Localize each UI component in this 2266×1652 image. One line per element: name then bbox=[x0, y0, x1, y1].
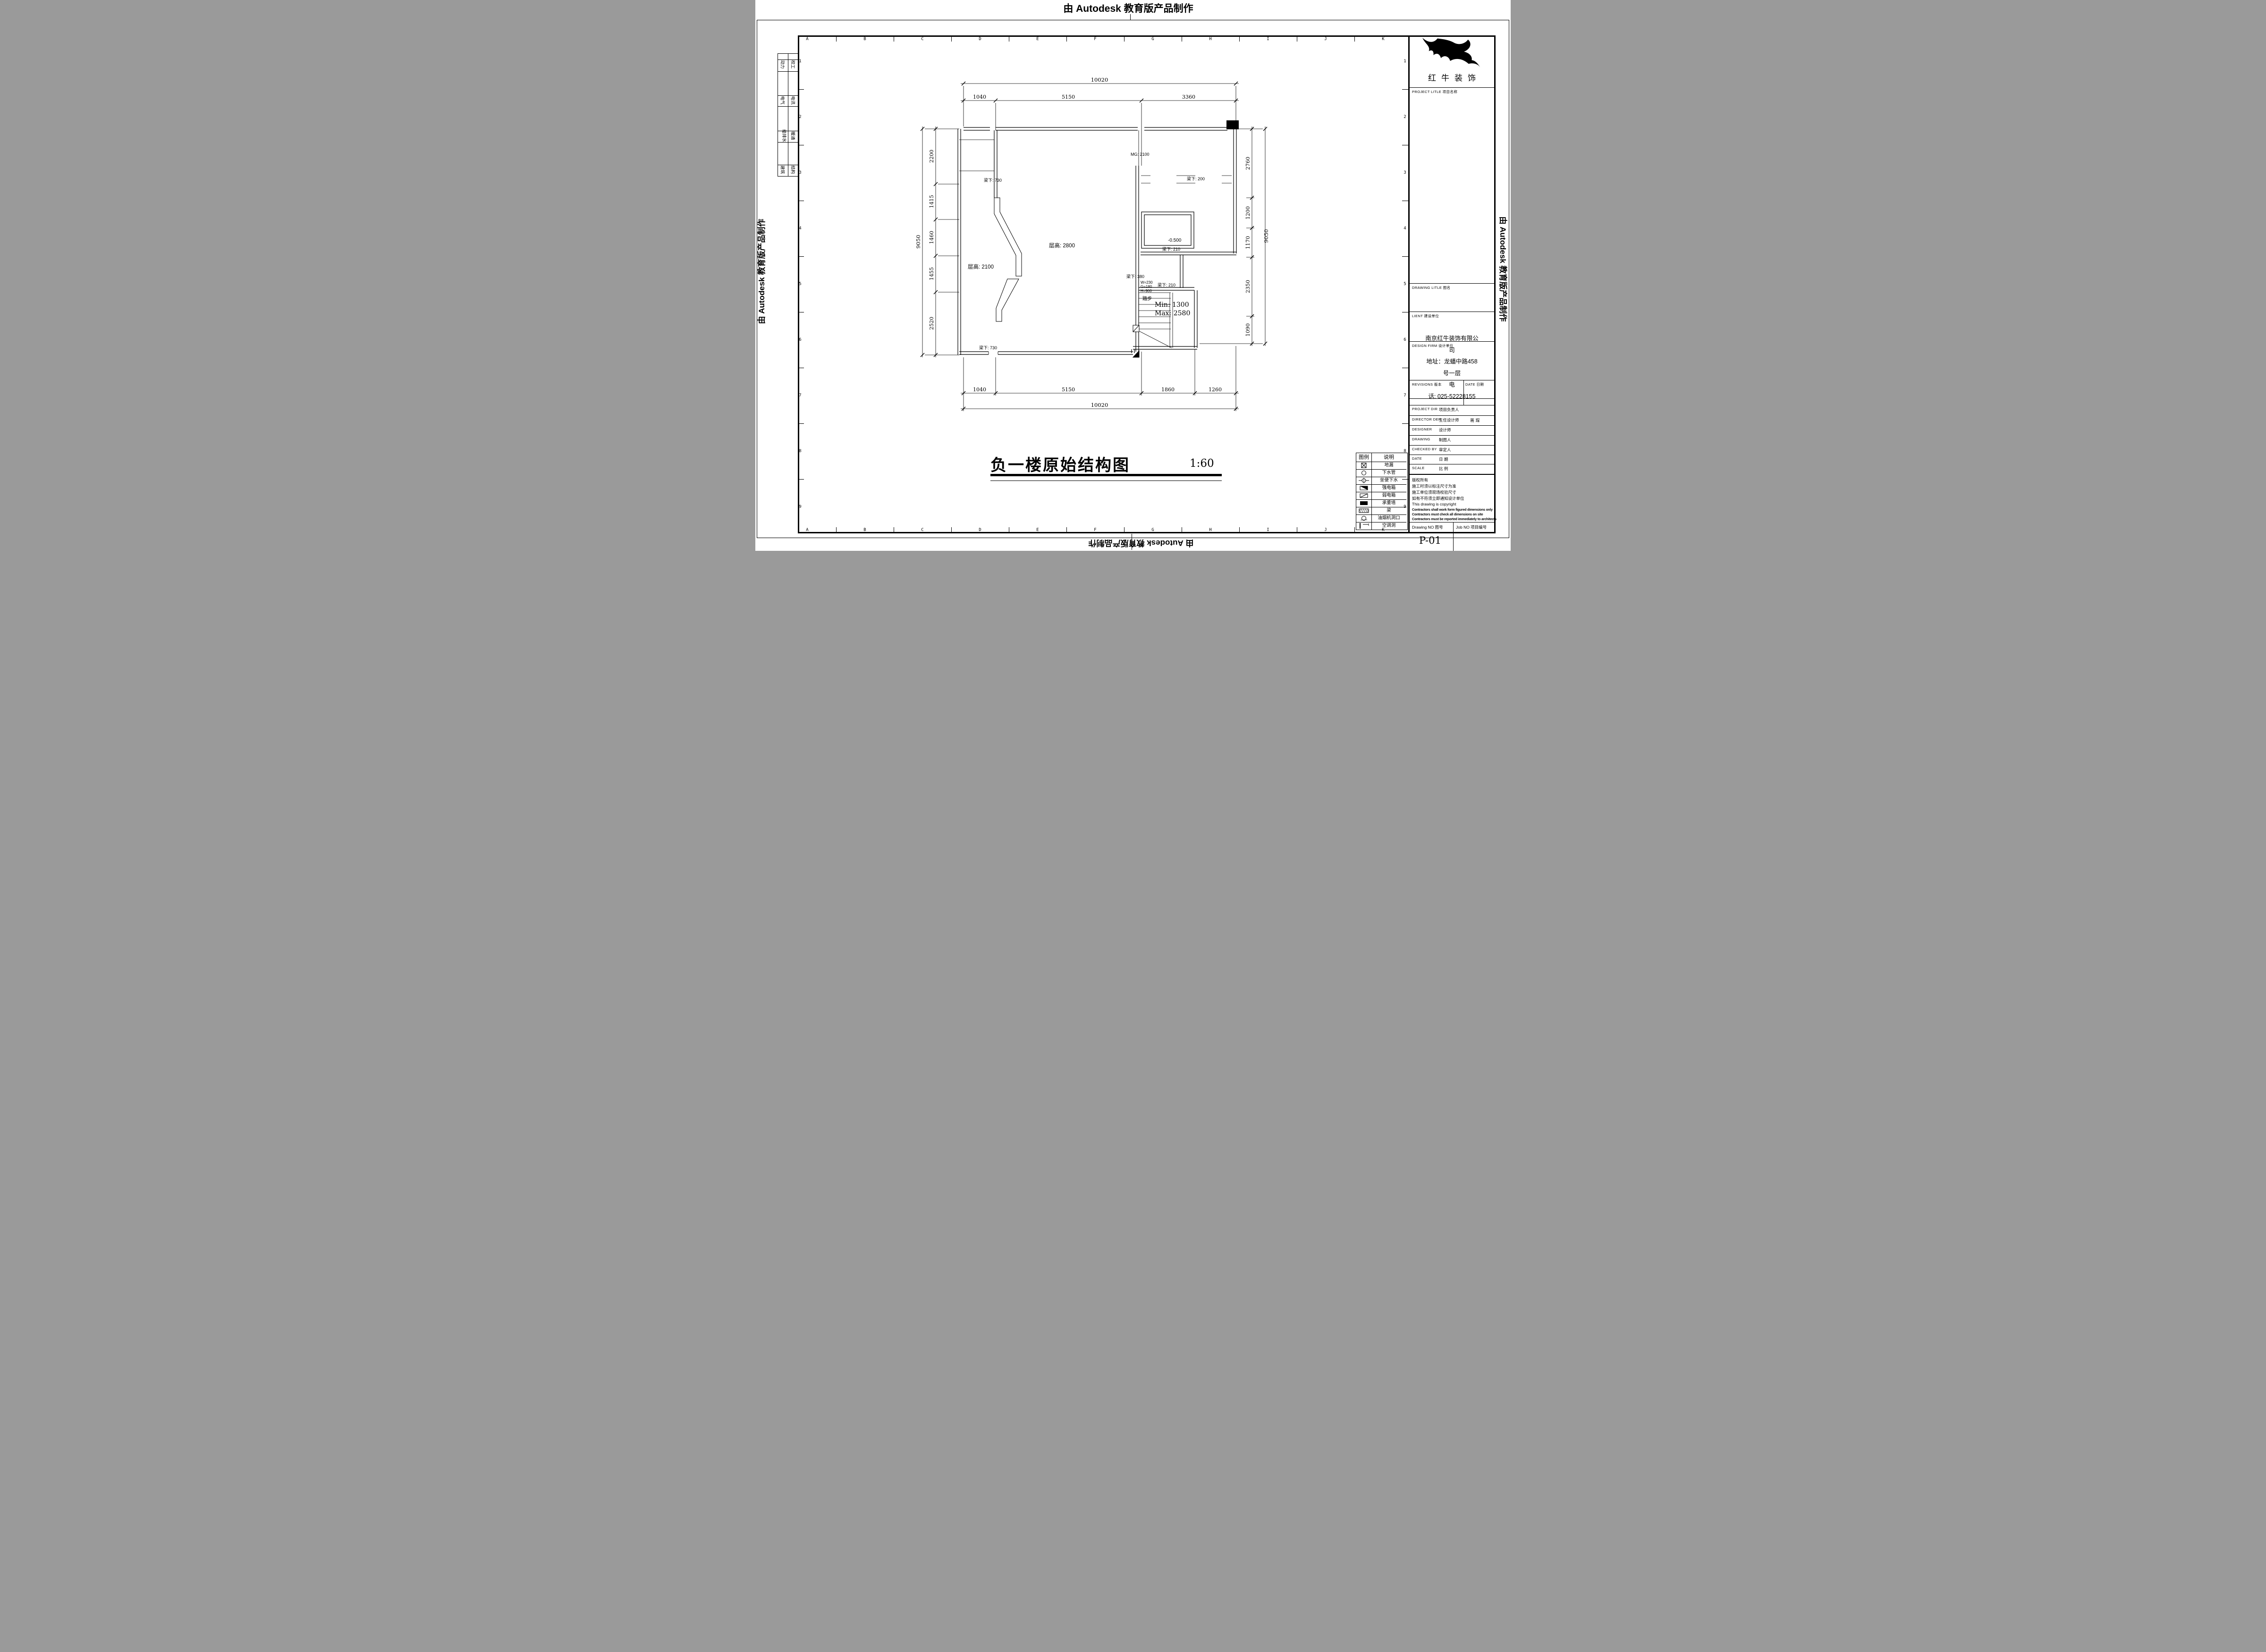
tb-job-no-label: Job NO 项目编号 bbox=[1456, 524, 1487, 530]
grid-number-right: 6 bbox=[1402, 337, 1408, 342]
grid-tick-top bbox=[951, 35, 952, 42]
grid-tick-bottom bbox=[1354, 527, 1355, 533]
legend-desc: 下水管 bbox=[1371, 469, 1406, 477]
tb-line bbox=[1410, 380, 1494, 380]
label-steps: 踏步 bbox=[1142, 295, 1152, 302]
door-jambs-top bbox=[1139, 130, 1141, 166]
grid-tick-top bbox=[1066, 35, 1067, 42]
tb-row-en: PROJECT DIR bbox=[1412, 407, 1437, 411]
grid-tick-left bbox=[798, 145, 804, 145]
tb-row: DATE日 期 bbox=[1410, 455, 1494, 464]
dim-right-0: 2760 bbox=[1245, 157, 1251, 170]
wall-stair-bottom bbox=[1133, 346, 1197, 349]
grid-letter-top: I bbox=[1265, 37, 1271, 42]
niche-lines bbox=[959, 140, 994, 171]
grid-number-right: 3 bbox=[1402, 170, 1408, 175]
grid-letter-bottom: B bbox=[862, 528, 868, 532]
tb-drawing-label: DRAWING LITLE 图名 bbox=[1412, 285, 1451, 290]
wall-step bbox=[1132, 349, 1134, 353]
wall-top bbox=[964, 127, 1227, 130]
legend-desc: 空调洞 bbox=[1371, 522, 1406, 530]
tb-line bbox=[1410, 87, 1494, 88]
grid-tick-bottom bbox=[1009, 527, 1009, 533]
legend-symbol-hood-opening bbox=[1356, 514, 1371, 522]
tb-date-small-label: DATE 日期 bbox=[1465, 382, 1484, 387]
plan-scale: 1:60 bbox=[1190, 457, 1214, 470]
grid-letter-top: B bbox=[862, 37, 868, 42]
label-beam-210-a: 梁下: 210 bbox=[1162, 246, 1180, 252]
grid-number-left: 9 bbox=[797, 505, 803, 509]
legend-symbol-ac-hole bbox=[1356, 522, 1371, 530]
grid-letter-bottom: C bbox=[919, 528, 926, 532]
grid-tick-right bbox=[1402, 201, 1408, 201]
tb-row-value: 蒋 琛 bbox=[1470, 417, 1480, 423]
tb-client-label: LIENT 建设单位 bbox=[1412, 313, 1439, 319]
copyright-line: 如有不符须立即通知设计单位 bbox=[1412, 496, 1464, 501]
tb-row-zh: 设计师 bbox=[1439, 427, 1451, 433]
tb-row-en: DIRECTOR DER bbox=[1412, 417, 1441, 421]
legend-symbol-strong-power-box bbox=[1356, 484, 1371, 492]
label-height-2800: 层高: 2800 bbox=[1049, 242, 1075, 249]
tb-firm-info-line: 号一层 bbox=[1411, 368, 1493, 379]
grid-letter-top: F bbox=[1092, 37, 1099, 42]
grid-number-left: 4 bbox=[797, 226, 803, 231]
grid-tick-left bbox=[798, 479, 804, 480]
wall-corridor bbox=[1180, 255, 1183, 288]
dim-bottom-0: 1040 bbox=[973, 387, 986, 393]
tb-rows: PROJECT DIR项目负责人DIRECTOR DER主任设计师蒋 琛DESI… bbox=[1410, 405, 1494, 474]
grid-tick-top bbox=[1182, 35, 1182, 42]
grid-number-left: 6 bbox=[797, 337, 803, 342]
tb-row-en: DRAWING bbox=[1412, 437, 1430, 441]
grid-tick-top bbox=[1124, 35, 1125, 42]
column-filled bbox=[1226, 120, 1239, 129]
grid-letter-top: A bbox=[804, 37, 811, 42]
grid-letter-top: G bbox=[1150, 37, 1156, 42]
tb-line bbox=[1410, 283, 1494, 284]
ramp-upper bbox=[994, 198, 1022, 276]
grid-number-right: 9 bbox=[1402, 505, 1408, 509]
dim-top-1: 5150 bbox=[1062, 94, 1075, 100]
legend-desc: 地漏 bbox=[1371, 462, 1406, 469]
grid-tick-top bbox=[836, 35, 837, 42]
grid-letter-bottom: F bbox=[1092, 528, 1099, 532]
legend-row: 梁 bbox=[1356, 507, 1406, 515]
legend-header-desc: 说明 bbox=[1371, 453, 1406, 462]
tb-row-en: SCALE bbox=[1412, 466, 1425, 470]
legend-row: 油烟机洞口 bbox=[1356, 514, 1406, 523]
bull-logo-tail bbox=[1469, 60, 1480, 67]
grid-tick-top bbox=[1009, 35, 1009, 42]
grid-tick-top bbox=[1239, 35, 1240, 42]
tb-row-zh: 项目负责人 bbox=[1439, 407, 1459, 413]
grid-number-right: 8 bbox=[1402, 449, 1408, 454]
beam-lines-200 bbox=[1141, 176, 1232, 183]
dim-right-1: 1200 bbox=[1245, 206, 1251, 219]
grid-letter-bottom: K bbox=[1380, 528, 1387, 532]
grid-tick-left bbox=[798, 368, 804, 368]
grid-tick-right bbox=[1402, 423, 1408, 424]
grid-letter-top: K bbox=[1380, 37, 1387, 42]
wall-niche bbox=[994, 130, 997, 198]
grid-letter-bottom: D bbox=[977, 528, 983, 532]
grid-tick-right bbox=[1402, 145, 1408, 145]
grid-tick-right bbox=[1402, 256, 1408, 257]
tb-project-label: PROJECT LITLE 项目名称 bbox=[1412, 89, 1457, 94]
dim-top-overall: 10020 bbox=[1091, 76, 1108, 83]
tb-row: DIRECTOR DER主任设计师蒋 琛 bbox=[1410, 415, 1494, 426]
grid-letter-bottom: H bbox=[1207, 528, 1214, 532]
grid-tick-left bbox=[798, 312, 804, 312]
dim-top-2: 3360 bbox=[1182, 94, 1195, 100]
legend-symbol-drain-pipe bbox=[1356, 469, 1371, 477]
door-jambs-bottom bbox=[989, 352, 998, 354]
dimension-ticks bbox=[921, 82, 1267, 411]
legend-rows: 地漏下水管坐便下水强电箱弱电箱承重墙梁油烟机洞口空调洞 bbox=[1356, 462, 1406, 530]
tb-row-zh: 主任设计师 bbox=[1439, 417, 1459, 423]
dim-right-2: 1170 bbox=[1245, 236, 1251, 249]
legend-symbol-weak-power-box bbox=[1356, 492, 1371, 499]
copyright-line: 施工单位须现场校验尺寸 bbox=[1412, 489, 1456, 495]
dim-bottom-overall: 10020 bbox=[1091, 402, 1108, 408]
ramp-lower bbox=[996, 279, 1019, 321]
dim-bottom-3: 1260 bbox=[1209, 387, 1222, 393]
tb-line bbox=[1410, 398, 1494, 399]
company-logo bbox=[1420, 37, 1484, 68]
drawing-sheet: 由 Autodesk 教育版产品制作 由 Autodesk 教育版产品制作 由 … bbox=[755, 0, 1511, 551]
grid-number-left: 5 bbox=[797, 282, 803, 287]
tb-row: SCALE比 例 bbox=[1410, 464, 1494, 475]
grid-tick-right bbox=[1402, 479, 1408, 480]
grid-letter-bottom: J bbox=[1322, 528, 1329, 532]
tb-line bbox=[1410, 312, 1494, 312]
grid-letter-top: J bbox=[1322, 37, 1329, 42]
legend-row: 承重墙 bbox=[1356, 499, 1406, 507]
wall-mid-537 bbox=[1141, 252, 1236, 255]
grid-tick-bottom bbox=[1124, 527, 1125, 533]
tb-firm-info-line: 司 bbox=[1411, 345, 1493, 356]
wall-right bbox=[1234, 129, 1236, 253]
grid-tick-bottom bbox=[1297, 527, 1297, 533]
grid-letter-bottom: E bbox=[1034, 528, 1041, 532]
title-underline-thick bbox=[990, 474, 1222, 476]
label-level: -0.500 bbox=[1168, 238, 1182, 243]
legend-header-symbol: 图例 bbox=[1356, 453, 1371, 462]
dim-right-4: 1090 bbox=[1245, 323, 1251, 337]
label-beam-200: 梁下: 200 bbox=[1187, 176, 1205, 181]
dim-right-overall: 9050 bbox=[1263, 229, 1269, 243]
grid-number-right: 1 bbox=[1402, 59, 1408, 64]
tb-line bbox=[1410, 522, 1494, 523]
bull-logo-shape bbox=[1422, 38, 1472, 64]
grid-number-left: 3 bbox=[797, 170, 803, 175]
legend-desc: 强电箱 bbox=[1371, 484, 1406, 492]
tb-copyright: 版权所有施工时须以标注尺寸为准施工单位须现场校验尺寸如有不符须立即通知设计单位T… bbox=[1412, 477, 1493, 522]
grid-tick-left bbox=[798, 256, 804, 257]
label-stair-w: W=230 bbox=[1141, 280, 1153, 285]
dim-top-0: 1040 bbox=[973, 94, 986, 100]
grid-letter-top: E bbox=[1034, 37, 1041, 42]
grid-number-right: 2 bbox=[1402, 115, 1408, 119]
tb-row: DRAWING制图人 bbox=[1410, 435, 1494, 446]
grid-letter-top: H bbox=[1207, 37, 1214, 42]
legend-desc: 承重墙 bbox=[1371, 499, 1406, 507]
legend-row: 强电箱 bbox=[1356, 484, 1406, 492]
tb-drawing-no: P-01 bbox=[1419, 535, 1441, 546]
tb-row-zh: 制图人 bbox=[1439, 437, 1451, 443]
legend-desc: 梁 bbox=[1371, 507, 1406, 514]
tb-line bbox=[1453, 532, 1454, 551]
copyright-line: Contractors shall work form figured dime… bbox=[1412, 507, 1493, 512]
label-beam-730-bottom: 梁下: 730 bbox=[979, 345, 997, 350]
copyright-line: Contractors must be reported immediately… bbox=[1412, 517, 1497, 521]
wall-bottom bbox=[959, 352, 1133, 354]
dim-left-overall: 9050 bbox=[915, 235, 922, 248]
label-beam-730-top: 梁下: 730 bbox=[984, 177, 1002, 183]
dim-left-3: 1455 bbox=[929, 267, 935, 280]
label-stair-max: Max: 2580 bbox=[1155, 310, 1190, 317]
copyright-line: 版权所有 bbox=[1412, 477, 1428, 483]
copyright-line: Contractors must check all dimensions on… bbox=[1412, 512, 1483, 516]
grid-tick-left bbox=[798, 201, 804, 201]
legend-desc: 油烟机洞口 bbox=[1371, 514, 1406, 522]
tb-row-en: DATE bbox=[1412, 456, 1422, 461]
grid-letter-bottom: I bbox=[1265, 528, 1271, 532]
legend-symbol-beam bbox=[1356, 507, 1371, 514]
dim-bottom-2: 1860 bbox=[1161, 387, 1175, 393]
tb-row-en: DESIGNER bbox=[1412, 427, 1432, 431]
grid-tick-bottom bbox=[836, 527, 837, 533]
label-mg: MG: 2100 bbox=[1131, 152, 1150, 157]
label-stair-h: H=900 bbox=[1141, 289, 1152, 293]
tb-row: DESIGNER设计师 bbox=[1410, 425, 1494, 436]
wall-left bbox=[958, 129, 961, 355]
grid-tick-top bbox=[894, 35, 894, 42]
copyright-line: This drawing is copyright bbox=[1412, 502, 1456, 506]
label-beam-210-b: 梁下: 210 bbox=[1158, 282, 1175, 287]
grid-tick-right bbox=[1402, 89, 1408, 90]
ramp-shapes bbox=[994, 198, 1022, 321]
tb-line bbox=[1453, 522, 1454, 532]
label-stair-g: G=180 bbox=[1141, 285, 1152, 289]
dim-left-4: 2520 bbox=[929, 317, 935, 330]
label-beam-380: 梁下: 380 bbox=[1126, 274, 1144, 279]
grid-number-left: 1 bbox=[797, 59, 803, 64]
grid-tick-bottom bbox=[951, 527, 952, 533]
tb-row-en: CHECKED BY bbox=[1412, 447, 1437, 451]
dim-bottom-1: 5150 bbox=[1062, 387, 1075, 393]
grid-tick-bottom bbox=[1239, 527, 1240, 533]
grid-number-right: 4 bbox=[1402, 226, 1408, 231]
grid-tick-top bbox=[1297, 35, 1297, 42]
legend-desc: 坐便下水 bbox=[1371, 477, 1406, 484]
tb-row: PROJECT DIR项目负责人 bbox=[1410, 405, 1494, 416]
grid-tick-bottom bbox=[1182, 527, 1182, 533]
grid-letter-top: D bbox=[977, 37, 983, 42]
plan-title: 负一楼原始结构图 bbox=[990, 452, 1130, 475]
grid-tick-bottom bbox=[894, 527, 894, 533]
grid-number-left: 7 bbox=[797, 393, 803, 398]
tb-revisions-label: REVISIONS 版本 bbox=[1412, 382, 1442, 387]
tb-row: CHECKED BY审定人 bbox=[1410, 445, 1494, 455]
grid-tick-left bbox=[798, 423, 804, 424]
dim-left-2: 1460 bbox=[929, 231, 935, 244]
grid-number-right: 7 bbox=[1402, 393, 1408, 398]
tb-firm-info-line: 南京红牛装饰有限公 bbox=[1411, 333, 1493, 345]
tb-row-zh: 审定人 bbox=[1439, 447, 1451, 453]
tb-line bbox=[1463, 380, 1464, 405]
tb-row-zh: 日 期 bbox=[1439, 456, 1448, 462]
tb-firm-info-line: 话: 025-52228155 bbox=[1411, 391, 1493, 403]
grid-letter-bottom: G bbox=[1150, 528, 1156, 532]
grid-tick-left bbox=[798, 89, 804, 90]
legend-symbol-floor-drain bbox=[1356, 462, 1371, 469]
label-height-2100: 层高: 2100 bbox=[968, 263, 994, 270]
legend-symbol-toilet-drain bbox=[1356, 477, 1371, 484]
dimension-lines bbox=[922, 84, 1265, 411]
dim-right-3: 2350 bbox=[1245, 280, 1251, 293]
legend-table: 图例 说明 地漏下水管坐便下水强电箱弱电箱承重墙梁油烟机洞口空调洞 bbox=[1356, 453, 1408, 530]
copyright-line: 施工时须以标注尺寸为准 bbox=[1412, 483, 1456, 489]
tb-firm-info-line: 地址：龙蟠中路458 bbox=[1411, 356, 1493, 368]
legend-symbol-load-bearing-wall bbox=[1356, 499, 1371, 507]
grid-tick-right bbox=[1402, 312, 1408, 312]
label-stair-min: Min: 1300 bbox=[1155, 301, 1189, 309]
grid-number-left: 2 bbox=[797, 115, 803, 119]
legend-row: 下水管 bbox=[1356, 469, 1406, 477]
grid-tick-top bbox=[1354, 35, 1355, 42]
tb-row-zh: 比 例 bbox=[1439, 466, 1448, 472]
dim-left-1: 1415 bbox=[929, 195, 935, 208]
grid-tick-bottom bbox=[1066, 527, 1067, 533]
grid-letter-top: C bbox=[919, 37, 926, 42]
column-marker-triangle bbox=[1133, 351, 1139, 357]
legend-desc: 弱电箱 bbox=[1371, 492, 1406, 499]
dim-left-0: 2200 bbox=[929, 150, 935, 163]
grid-tick-right bbox=[1402, 368, 1408, 368]
stair-break-line bbox=[1140, 331, 1172, 348]
legend-row: 地漏 bbox=[1356, 462, 1406, 470]
legend-row: 坐便下水 bbox=[1356, 477, 1406, 485]
grid-letter-bottom: A bbox=[804, 528, 811, 532]
grid-number-right: 5 bbox=[1402, 282, 1408, 287]
legend-row: 弱电箱 bbox=[1356, 492, 1406, 500]
title-underline-thin bbox=[990, 480, 1222, 481]
company-name: 红牛装饰 bbox=[1410, 71, 1494, 83]
wall-stair-left bbox=[1136, 166, 1139, 352]
wall-stair-right bbox=[1194, 290, 1197, 348]
tb-line-thick bbox=[1410, 474, 1494, 475]
grid-number-left: 8 bbox=[797, 449, 803, 454]
title-block: 红牛装饰 PROJECT LITLE 项目名称 DRAWING LITLE 图名… bbox=[1410, 35, 1494, 532]
tb-drawing-no-label: Drawing NO 图号 bbox=[1412, 524, 1443, 530]
